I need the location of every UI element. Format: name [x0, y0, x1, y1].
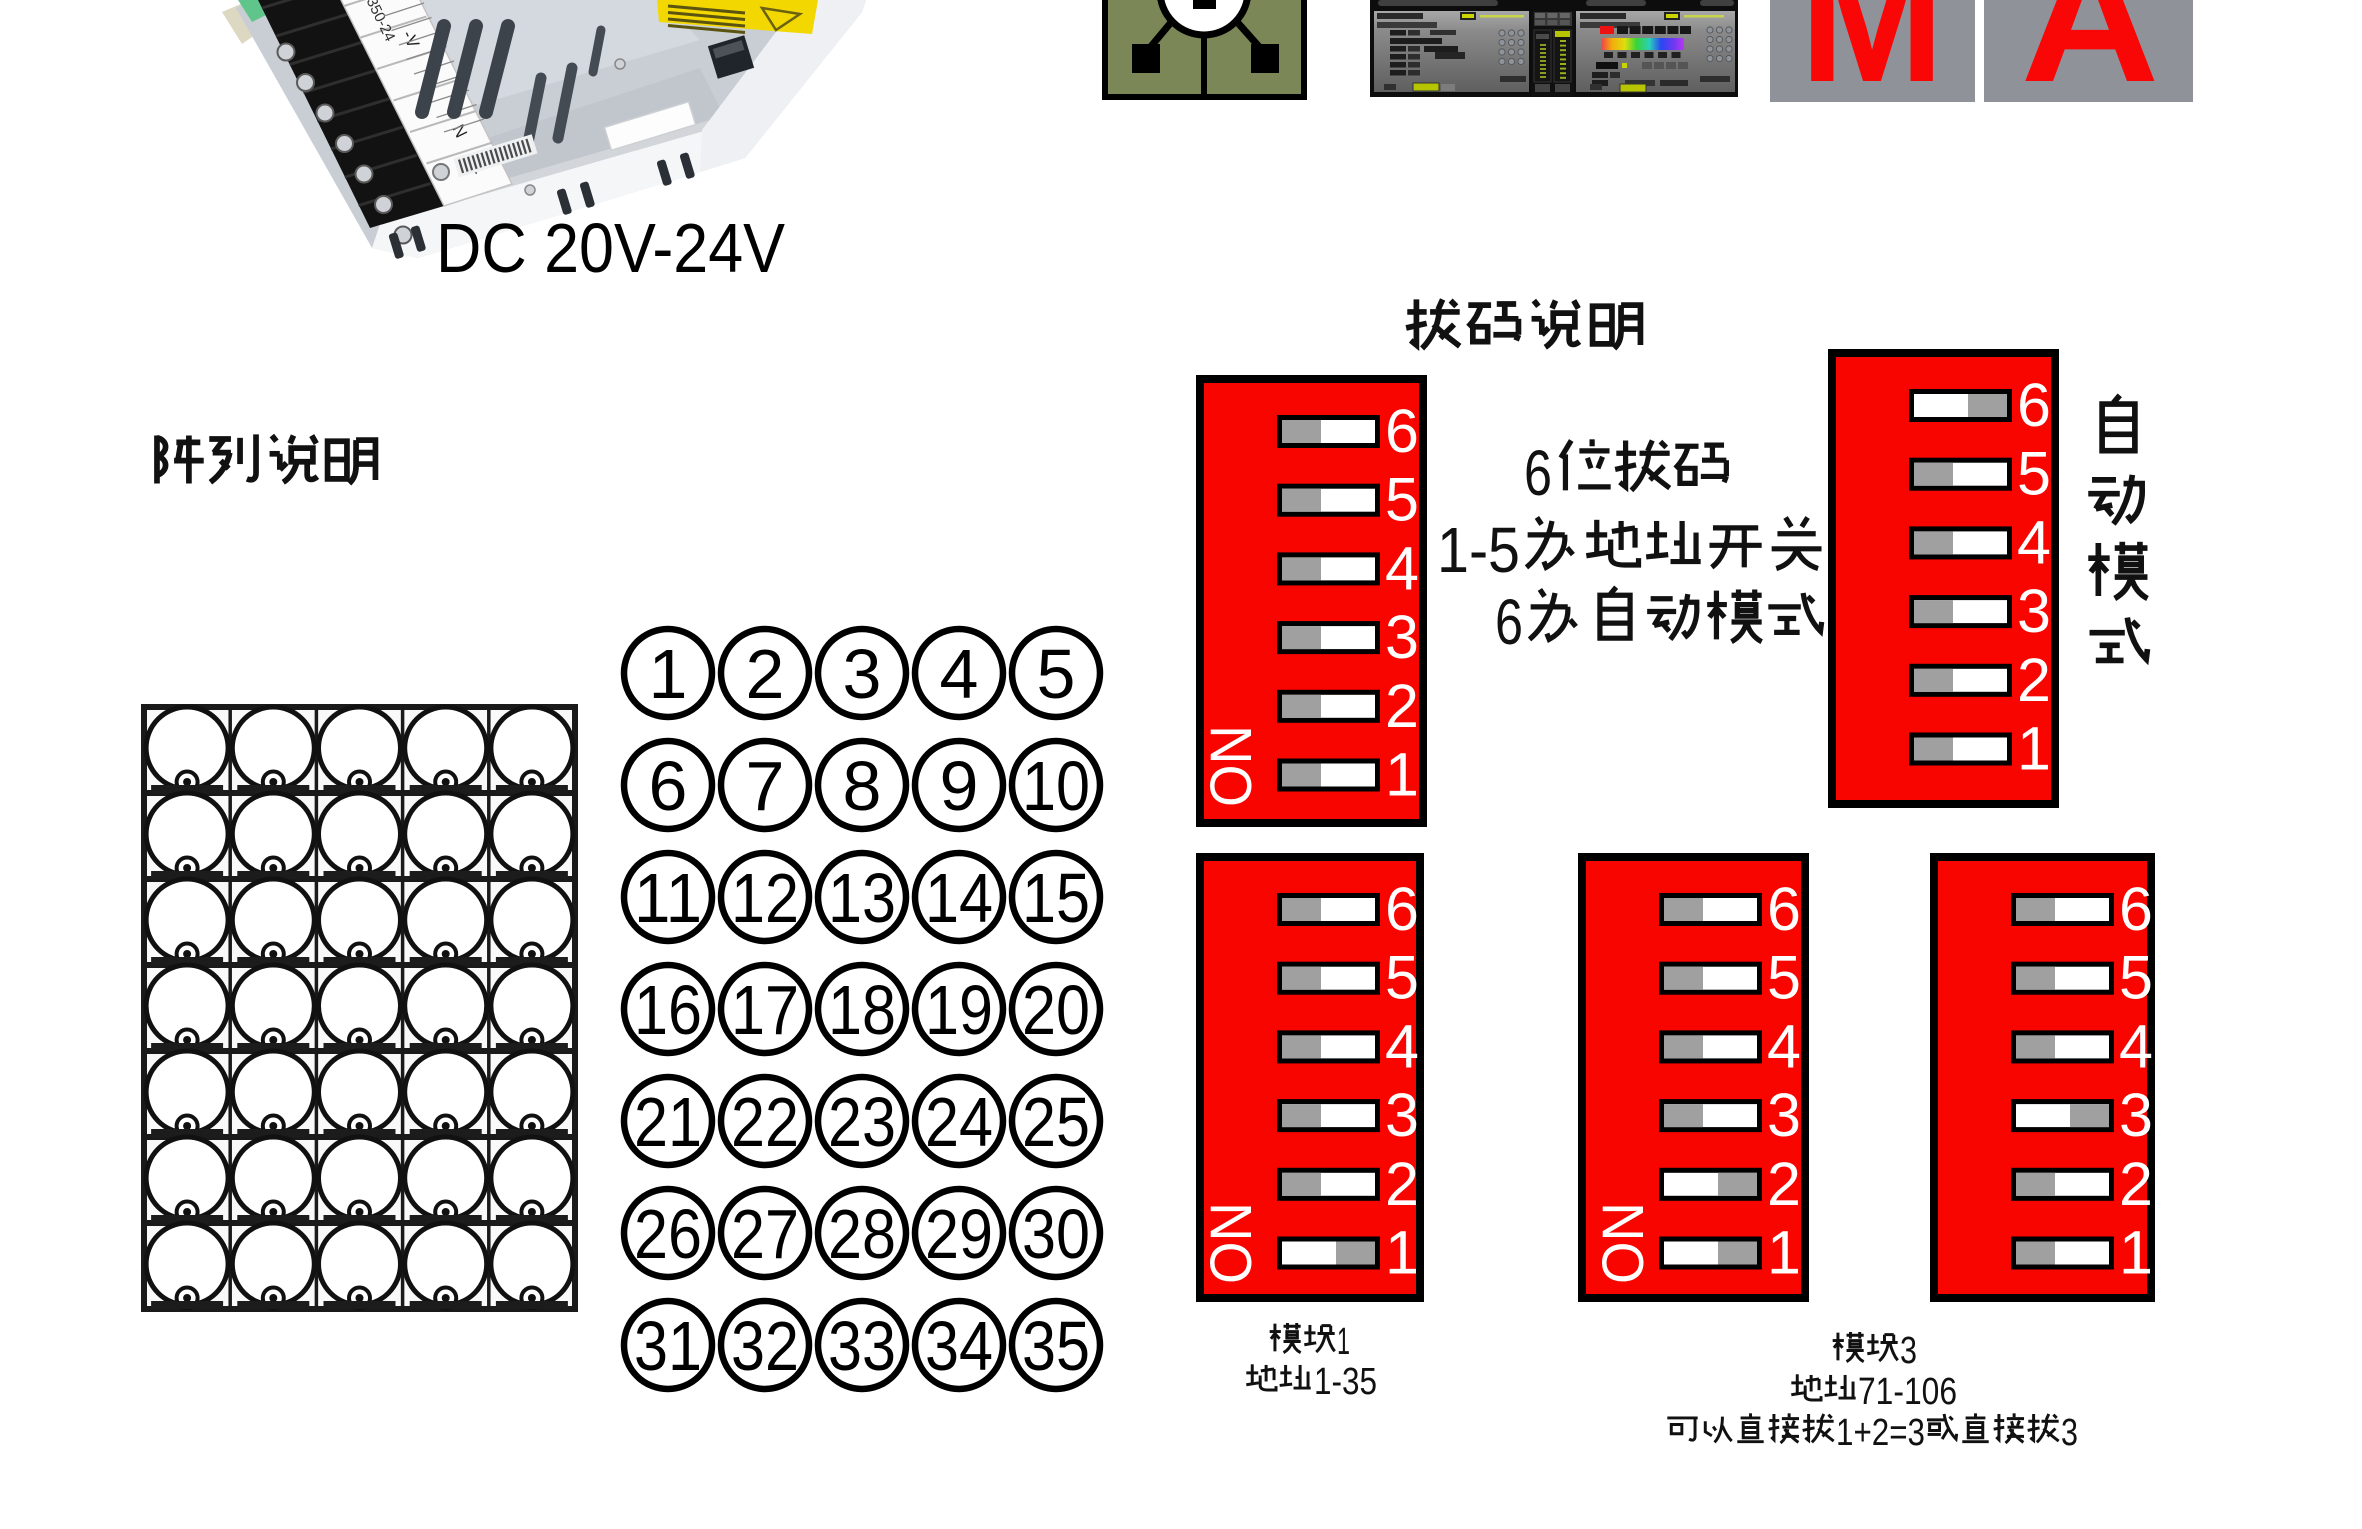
svg-text:1: 1: [1385, 741, 1419, 809]
svg-text:1-5: 1-5: [1437, 514, 1520, 586]
svg-text:ON: ON: [1591, 1202, 1656, 1284]
svg-text:17: 17: [731, 971, 799, 1049]
svg-text:6: 6: [1385, 397, 1419, 465]
svg-text:2: 2: [1767, 1150, 1801, 1218]
svg-text:31: 31: [634, 1307, 702, 1385]
svg-text:DC 20V-24V: DC 20V-24V: [436, 209, 785, 287]
svg-text:4: 4: [940, 635, 979, 713]
svg-text:30: 30: [1022, 1195, 1090, 1273]
svg-text:18: 18: [828, 971, 896, 1049]
svg-text:ON: ON: [1199, 725, 1264, 807]
svg-text:7: 7: [746, 747, 785, 825]
svg-text:3: 3: [2119, 1081, 2153, 1149]
svg-text:2: 2: [1385, 1150, 1419, 1218]
svg-text:1: 1: [1767, 1219, 1801, 1287]
svg-text:5: 5: [2017, 440, 2051, 508]
svg-text:8: 8: [843, 747, 882, 825]
svg-text:5: 5: [1037, 635, 1076, 713]
svg-text:71-106: 71-106: [1858, 1371, 1957, 1413]
svg-text:1: 1: [1337, 1321, 1350, 1363]
svg-text:1-35: 1-35: [1314, 1361, 1377, 1403]
svg-text:33: 33: [828, 1307, 896, 1385]
svg-text:3: 3: [2061, 1412, 2078, 1454]
svg-text:1: 1: [2017, 715, 2051, 783]
svg-text:11: 11: [634, 859, 702, 937]
svg-text:26: 26: [634, 1195, 702, 1273]
svg-text:21: 21: [634, 1083, 702, 1161]
svg-text:3: 3: [1900, 1330, 1917, 1372]
svg-text:19: 19: [925, 971, 993, 1049]
svg-text:3: 3: [1385, 603, 1419, 671]
svg-text:5: 5: [2119, 944, 2153, 1012]
svg-text:16: 16: [634, 971, 702, 1049]
svg-text:3: 3: [1385, 1081, 1419, 1149]
svg-text:2: 2: [2017, 646, 2051, 714]
svg-text:10: 10: [1022, 747, 1090, 825]
svg-text:6: 6: [2119, 875, 2153, 943]
svg-text:35: 35: [1022, 1307, 1090, 1385]
svg-text:3: 3: [2017, 577, 2051, 645]
svg-text:5: 5: [1385, 466, 1419, 534]
svg-text:15: 15: [1022, 859, 1090, 937]
svg-text:27: 27: [731, 1195, 799, 1273]
svg-text:1: 1: [649, 635, 688, 713]
svg-text:2: 2: [2119, 1150, 2153, 1218]
svg-text:28: 28: [828, 1195, 896, 1273]
svg-text:3: 3: [1767, 1081, 1801, 1149]
svg-text:2: 2: [1385, 672, 1419, 740]
svg-text:5: 5: [1385, 944, 1419, 1012]
svg-text:4: 4: [1767, 1012, 1801, 1080]
svg-text:1: 1: [1385, 1219, 1419, 1287]
svg-text:4: 4: [2017, 508, 2051, 576]
svg-text:6: 6: [1767, 875, 1801, 943]
svg-text:14: 14: [925, 859, 993, 937]
svg-text:13: 13: [828, 859, 896, 937]
svg-text:24: 24: [925, 1083, 993, 1161]
svg-text:A: A: [2021, 0, 2160, 120]
svg-text:9: 9: [940, 747, 979, 825]
svg-text:29: 29: [925, 1195, 993, 1273]
svg-text:6: 6: [2017, 371, 2051, 439]
svg-text:23: 23: [828, 1083, 896, 1161]
svg-text:1: 1: [2119, 1219, 2153, 1287]
svg-text:12: 12: [731, 859, 799, 937]
svg-text:32: 32: [731, 1307, 799, 1385]
svg-text:5: 5: [1767, 944, 1801, 1012]
svg-text:4: 4: [1385, 534, 1419, 602]
svg-text:22: 22: [731, 1083, 799, 1161]
svg-text:34: 34: [925, 1307, 993, 1385]
svg-text:6: 6: [649, 747, 688, 825]
svg-text:2: 2: [746, 635, 785, 713]
svg-text:4: 4: [2119, 1012, 2153, 1080]
svg-text:25: 25: [1022, 1083, 1090, 1161]
svg-text:6: 6: [1524, 437, 1552, 509]
svg-text:1+2=3: 1+2=3: [1836, 1412, 1925, 1454]
svg-text:20: 20: [1022, 971, 1090, 1049]
svg-text:M: M: [1800, 0, 1945, 120]
svg-text:ON: ON: [1199, 1202, 1264, 1284]
svg-text:6: 6: [1495, 586, 1523, 658]
svg-text:3: 3: [843, 635, 882, 713]
svg-text:4: 4: [1385, 1012, 1419, 1080]
svg-text:6: 6: [1385, 875, 1419, 943]
